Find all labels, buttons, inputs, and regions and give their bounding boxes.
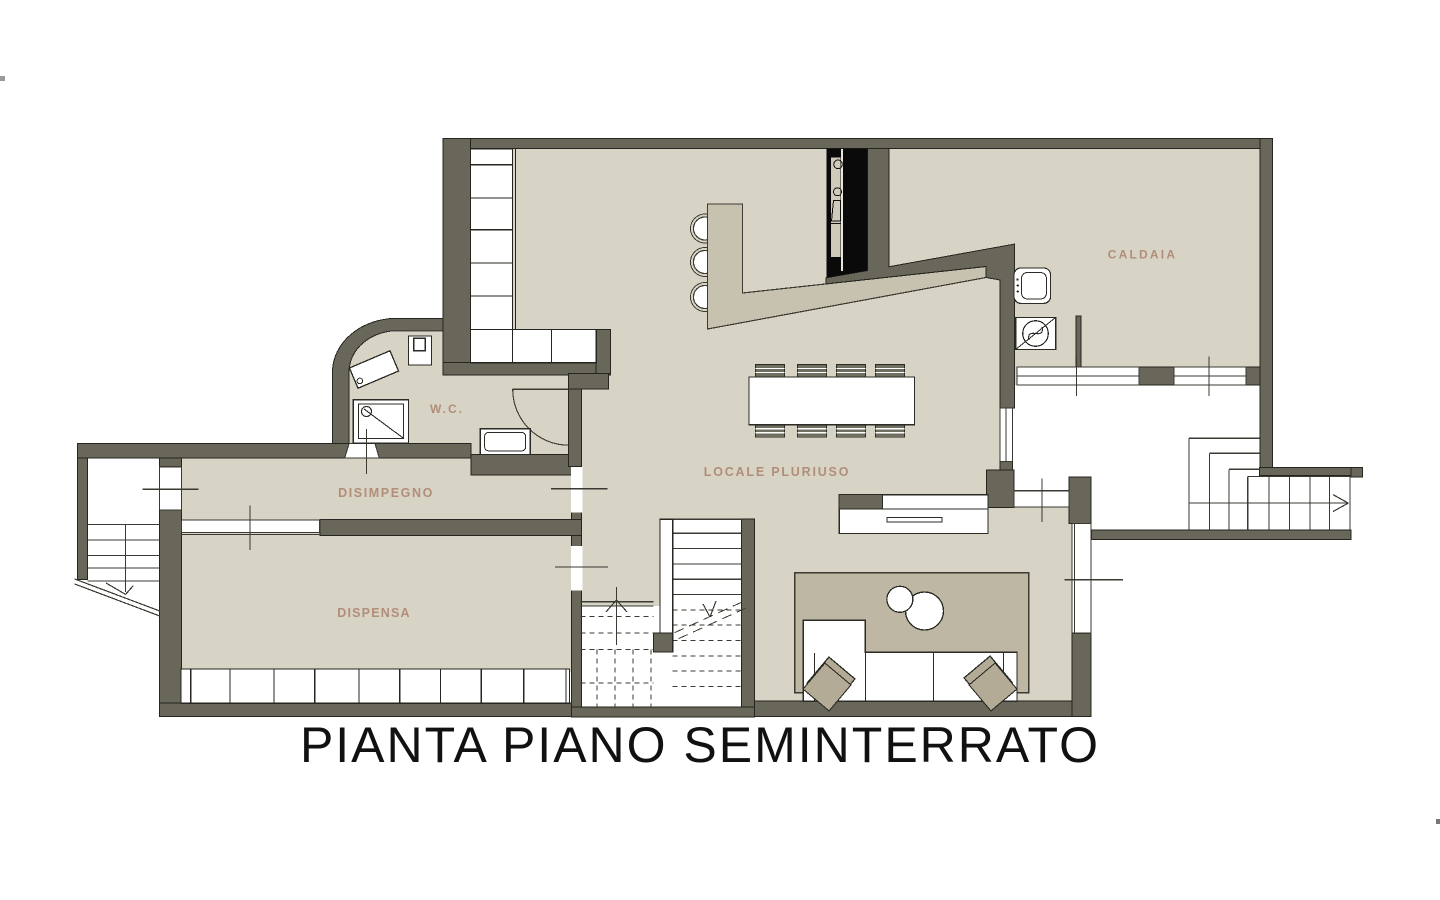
svg-text:LOCALE PLURIUSO: LOCALE PLURIUSO xyxy=(704,465,850,479)
svg-text:W.C.: W.C. xyxy=(430,402,464,416)
svg-text:DISIMPEGNO: DISIMPEGNO xyxy=(338,486,434,500)
svg-text:CALDAIA: CALDAIA xyxy=(1108,248,1177,262)
svg-text:DISPENSA: DISPENSA xyxy=(337,606,411,620)
svg-text:PIANTA PIANO SEMINTERRATO: PIANTA PIANO SEMINTERRATO xyxy=(300,717,1100,773)
